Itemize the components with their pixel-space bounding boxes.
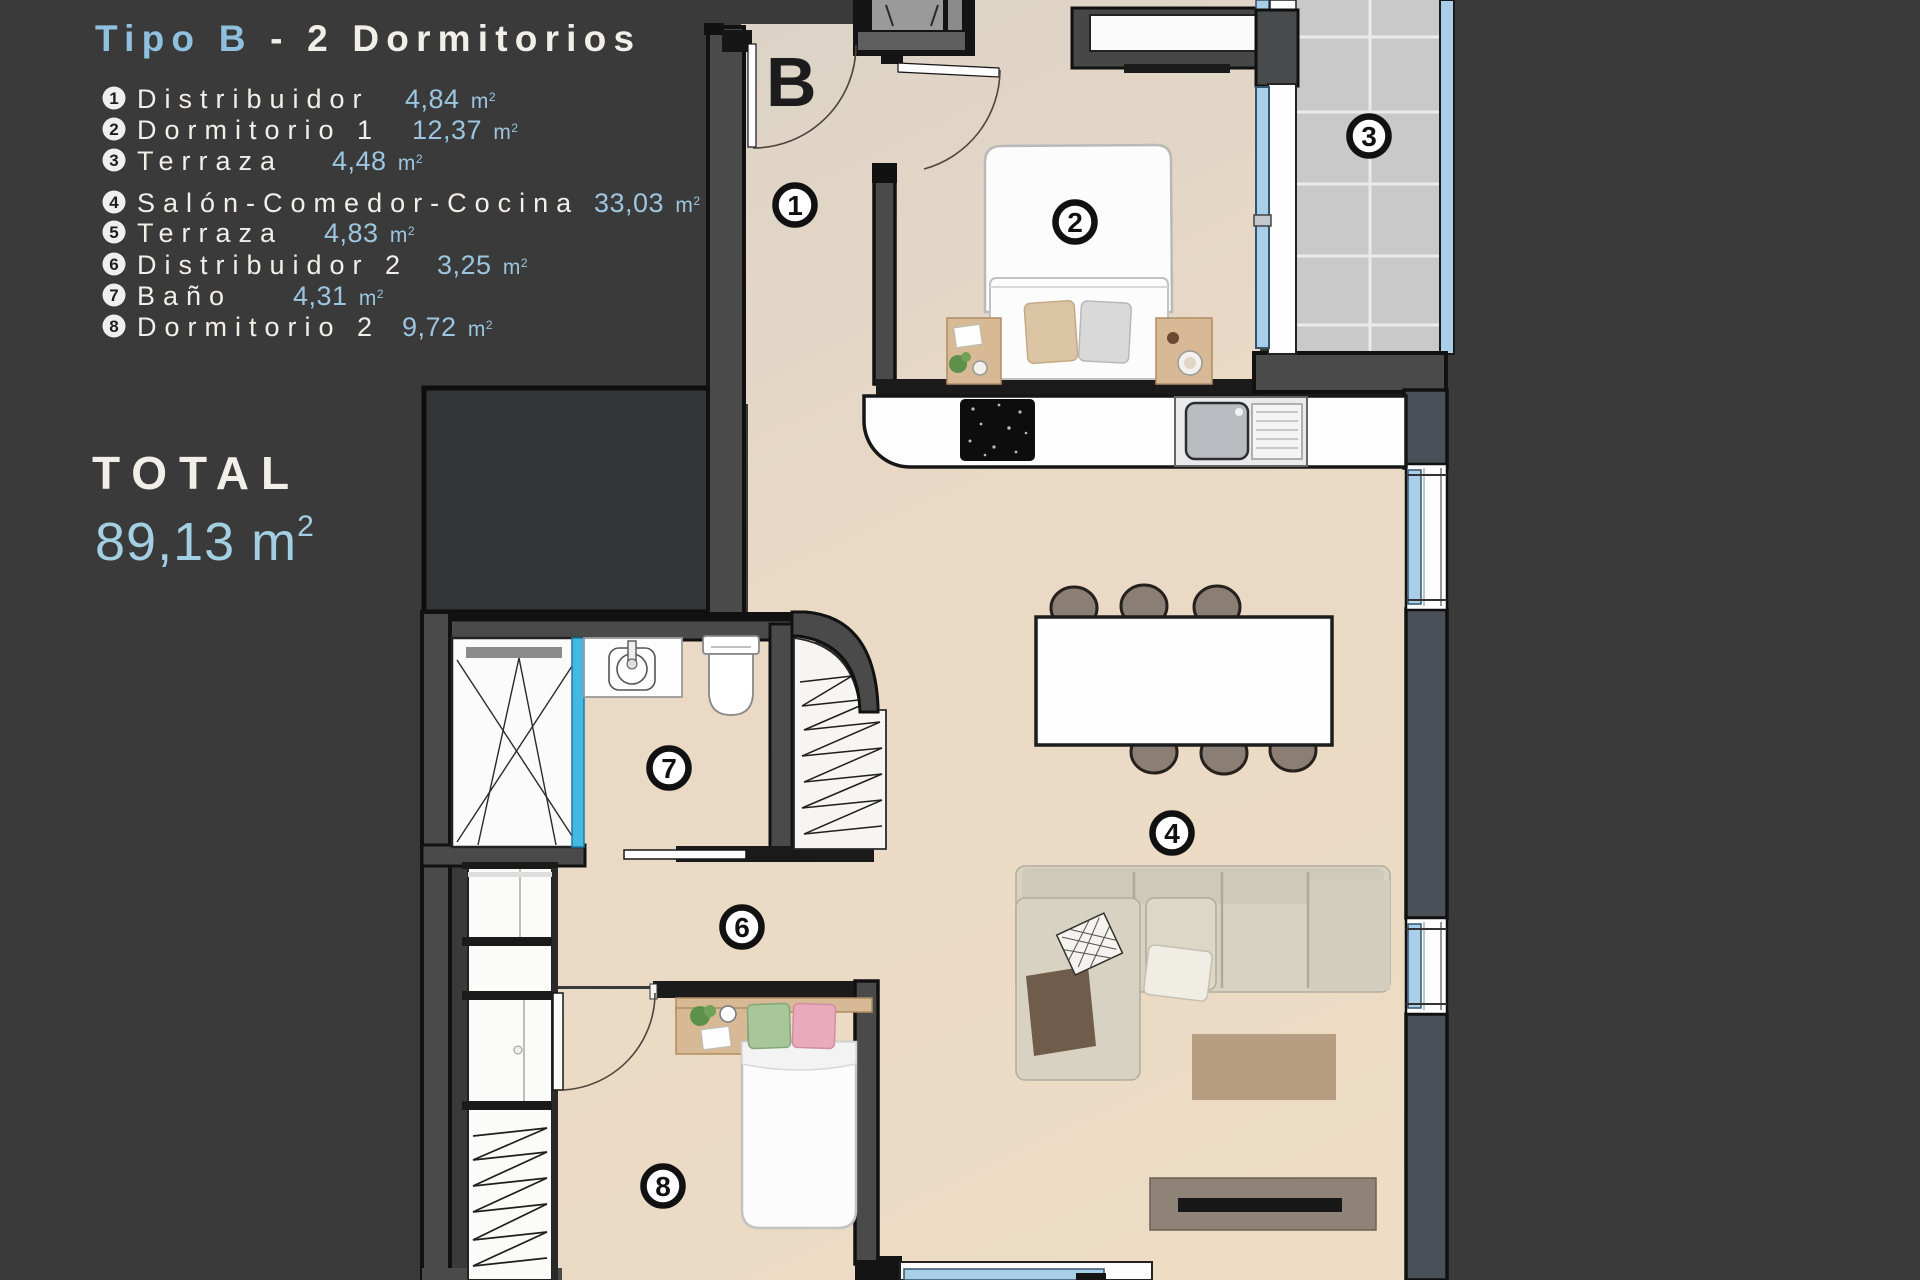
svg-text:4: 4 <box>109 193 119 212</box>
svg-text:Baño: Baño <box>137 281 232 311</box>
svg-text:Terraza: Terraza <box>137 218 283 248</box>
svg-text:B: B <box>766 43 817 121</box>
svg-text:8: 8 <box>109 317 118 336</box>
svg-text:5: 5 <box>109 223 118 242</box>
svg-text:2: 2 <box>1067 207 1083 238</box>
svg-text:Distribuidor 2: Distribuidor 2 <box>137 250 408 280</box>
svg-text:Terraza: Terraza <box>137 146 283 176</box>
svg-text:2: 2 <box>109 120 118 139</box>
svg-text:3: 3 <box>1361 121 1377 152</box>
svg-text:Tipo B - 2 Dormitorios: Tipo B - 2 Dormitorios <box>95 18 641 59</box>
svg-text:1: 1 <box>787 190 803 221</box>
svg-text:8: 8 <box>655 1171 671 1202</box>
svg-text:TOTAL: TOTAL <box>92 447 301 499</box>
svg-text:1: 1 <box>109 89 118 108</box>
svg-text:Dormitorio 1: Dormitorio 1 <box>137 115 380 145</box>
svg-text:6: 6 <box>734 912 750 943</box>
svg-text:7: 7 <box>661 753 677 784</box>
svg-text:3: 3 <box>109 151 118 170</box>
svg-text:89,13 m2: 89,13 m2 <box>95 510 315 572</box>
svg-text:4: 4 <box>1164 818 1180 849</box>
svg-text:Salón-Comedor-Cocina: Salón-Comedor-Cocina <box>137 188 579 218</box>
svg-text:Dormitorio 2: Dormitorio 2 <box>137 312 380 342</box>
svg-text:6: 6 <box>109 255 118 274</box>
svg-text:7: 7 <box>109 286 118 305</box>
svg-text:Distribuidor: Distribuidor <box>137 84 370 114</box>
